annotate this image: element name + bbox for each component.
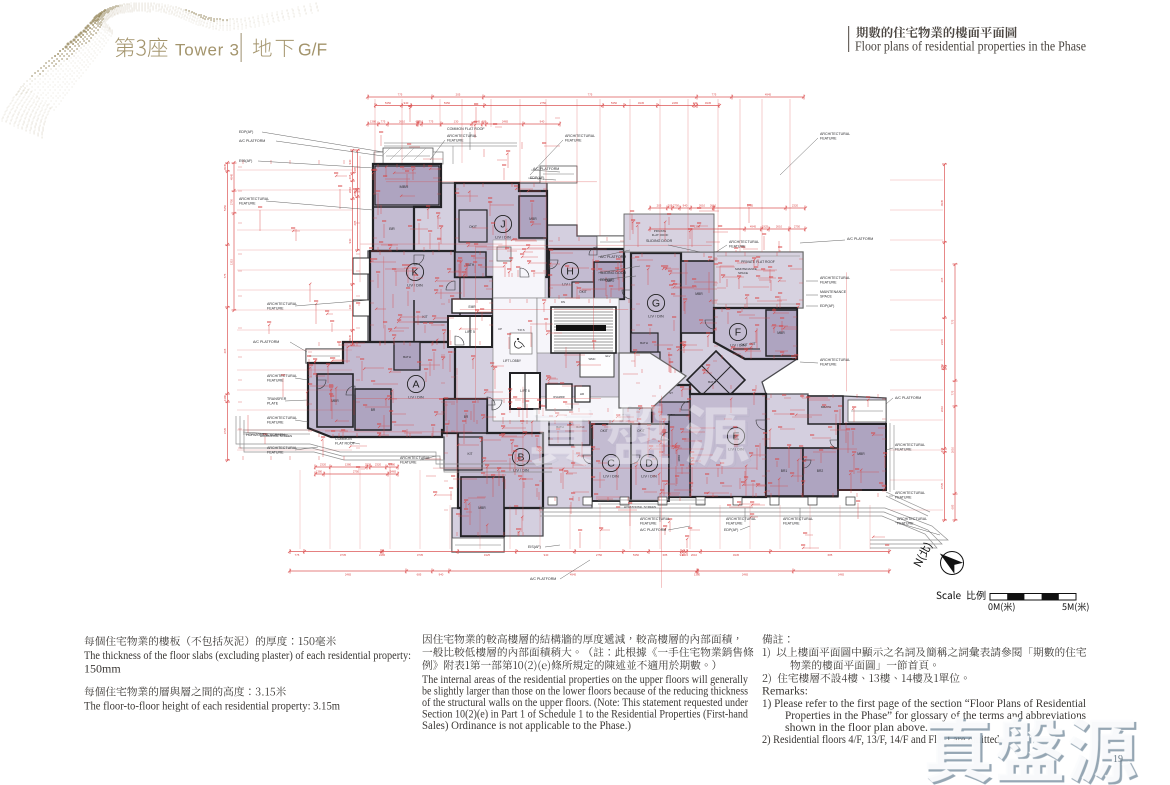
svg-text:G/F: G/F (298, 40, 327, 60)
svg-text:H: H (566, 266, 574, 278)
svg-text:LIFT 5: LIFT 5 (465, 330, 475, 334)
svg-text:KIT: KIT (468, 452, 473, 456)
svg-text:FEATURE: FEATURE (267, 379, 284, 383)
svg-text:FEATURE: FEATURE (267, 307, 284, 311)
svg-text:A/C PLATFORM: A/C PLATFORM (847, 237, 873, 241)
svg-text:LIV / DIN: LIV / DIN (641, 475, 657, 479)
svg-text:2750: 2750 (229, 198, 233, 205)
svg-text:4945: 4945 (348, 334, 352, 341)
svg-text:1380: 1380 (694, 573, 701, 577)
svg-text:FEATURE: FEATURE (267, 451, 284, 455)
svg-text:775: 775 (398, 93, 403, 97)
svg-text:FEATURE: FEATURE (565, 139, 582, 143)
svg-text:ELV: ELV (605, 354, 610, 358)
svg-text:130: 130 (454, 120, 459, 124)
svg-text:2610: 2610 (348, 186, 352, 193)
svg-text:2610: 2610 (691, 553, 698, 557)
svg-text:205: 205 (348, 174, 352, 179)
svg-text:OKIT: OKIT (740, 343, 747, 347)
svg-text:940: 940 (544, 553, 549, 557)
svg-text:FEATURE: FEATURE (820, 363, 837, 367)
svg-text:1925: 1925 (484, 553, 491, 557)
svg-text:940: 940 (683, 204, 688, 208)
svg-text:2750: 2750 (353, 470, 360, 474)
svg-text:2610: 2610 (940, 405, 944, 412)
svg-text:2320: 2320 (792, 204, 799, 208)
svg-text:A: A (412, 379, 419, 391)
svg-text:775: 775 (381, 120, 386, 124)
svg-text:LIFT LOBBY: LIFT LOBBY (503, 359, 522, 363)
svg-text:1315: 1315 (229, 258, 233, 265)
svg-text:COMMON: COMMON (335, 437, 352, 441)
svg-text:ARCHITECTURAL: ARCHITECTURAL (239, 197, 269, 201)
svg-text:2320: 2320 (375, 463, 382, 467)
svg-text:HR: HR (580, 392, 584, 396)
svg-text:4945: 4945 (229, 173, 233, 180)
svg-text:EDP(AF): EDP(AF) (724, 528, 738, 532)
svg-text:LIV / DIN: LIV / DIN (603, 475, 619, 479)
svg-text:5350: 5350 (223, 204, 227, 211)
svg-text:1925: 1925 (762, 225, 769, 229)
svg-text:ARCHITECTURAL: ARCHITECTURAL (640, 517, 670, 521)
svg-text:5350: 5350 (385, 101, 392, 105)
svg-text:A/C PLATFORM: A/C PLATFORM (253, 340, 279, 344)
svg-text:EDP(AF): EDP(AF) (530, 176, 544, 180)
svg-text:2465: 2465 (390, 470, 397, 474)
svg-text:SLIDING DOOR: SLIDING DOOR (600, 271, 627, 275)
svg-text:MAINTENANCE: MAINTENANCE (820, 290, 847, 294)
svg-text:MBR: MBR (331, 399, 339, 403)
svg-text:E95(AF): E95(AF) (239, 159, 252, 163)
svg-text:1380: 1380 (370, 120, 377, 124)
svg-text:150mm: 150mm (84, 662, 121, 676)
svg-text:G: G (652, 298, 660, 310)
svg-text:2465: 2465 (838, 573, 845, 577)
svg-text:FLAT ROOF: FLAT ROOF (335, 442, 356, 446)
svg-text:FEATURE: FEATURE (783, 522, 800, 526)
svg-text:940: 940 (348, 159, 352, 164)
svg-text:BR1: BR1 (781, 469, 788, 473)
svg-text:4945: 4945 (570, 573, 577, 577)
svg-text:4945: 4945 (765, 93, 772, 97)
svg-text:SPACE: SPACE (738, 271, 748, 275)
svg-text:4945: 4945 (940, 199, 944, 206)
svg-text:FEATURE: FEATURE (400, 461, 417, 465)
svg-text:685: 685 (482, 120, 487, 124)
svg-text:2465: 2465 (502, 120, 509, 124)
svg-text:1380: 1380 (345, 463, 352, 467)
svg-text:OKIT: OKIT (600, 429, 607, 433)
svg-text:775: 775 (950, 319, 954, 324)
svg-text:MBR: MBR (857, 452, 865, 456)
svg-text:4945: 4945 (638, 101, 645, 105)
svg-text:FEATURE: FEATURE (729, 245, 746, 249)
svg-text:OKIT: OKIT (469, 225, 477, 229)
svg-text:19: 19 (1113, 754, 1123, 765)
svg-text:BR2: BR2 (817, 469, 824, 473)
svg-text:UP: UP (498, 327, 502, 331)
svg-text:LIFT 6: LIFT 6 (520, 389, 530, 393)
svg-text:130: 130 (693, 101, 698, 105)
svg-text:3735: 3735 (223, 427, 227, 434)
svg-text:205: 205 (940, 277, 944, 282)
svg-text:A/C PLATFORM: A/C PLATFORM (895, 396, 921, 400)
svg-text:2750: 2750 (940, 363, 944, 370)
svg-text:F: F (735, 327, 741, 339)
svg-text:2750: 2750 (596, 553, 603, 557)
svg-text:J: J (500, 219, 505, 231)
svg-text:BATH: BATH (403, 355, 411, 359)
svg-text:2750: 2750 (673, 204, 680, 208)
svg-text:940: 940 (348, 238, 352, 243)
svg-text:FEATURE: FEATURE (447, 139, 464, 143)
svg-text:MBR: MBR (677, 454, 681, 462)
svg-text:MBR: MBR (529, 217, 537, 221)
svg-text:3735: 3735 (340, 553, 347, 557)
svg-text:LIV / DIN: LIV / DIN (408, 396, 424, 400)
svg-text:FEATURE: FEATURE (726, 522, 743, 526)
svg-text:ARCHITECTURAL: ARCHITECTURAL (820, 132, 850, 136)
svg-text:205: 205 (657, 204, 662, 208)
svg-text:LIV / DIN: LIV / DIN (407, 284, 423, 288)
svg-text:SLIDING DOOR: SLIDING DOOR (646, 239, 673, 243)
svg-text:BR: BR (389, 226, 395, 231)
svg-text:A/C PLATFORM: A/C PLATFORM (530, 577, 556, 581)
svg-text:940: 940 (540, 120, 545, 124)
svg-text:ARCHITECTURAL: ARCHITECTURAL (783, 517, 813, 521)
svg-text:1380: 1380 (316, 470, 323, 474)
svg-text:4945: 4945 (733, 553, 740, 557)
svg-text:4945: 4945 (750, 225, 757, 229)
svg-text:2610: 2610 (950, 446, 954, 453)
svg-text:FEATURE: FEATURE (267, 421, 284, 425)
svg-text:775: 775 (950, 390, 954, 395)
svg-text:T.R.S: T.R.S (517, 328, 524, 332)
svg-text:COMMON FLAT ROOF: COMMON FLAT ROOF (447, 127, 485, 131)
svg-text:OKIT: OKIT (579, 290, 586, 294)
svg-text:BR: BR (464, 415, 469, 419)
svg-text:2465: 2465 (353, 189, 357, 196)
svg-text:The thickness of the floor sla: The thickness of the floor slabs (exclud… (84, 648, 411, 662)
svg-text:FEATURE: FEATURE (895, 496, 912, 500)
svg-text:130: 130 (348, 304, 352, 309)
svg-text:ARCHITECTURAL: ARCHITECTURAL (895, 491, 925, 495)
svg-text:2465: 2465 (345, 573, 352, 577)
svg-text:LIV / DIN: LIV / DIN (495, 236, 511, 240)
svg-text:ARCHITECTURAL: ARCHITECTURAL (895, 443, 925, 447)
svg-text:775: 775 (588, 93, 593, 97)
svg-text:4945: 4945 (705, 101, 712, 105)
svg-text:Tower 3: Tower 3 (175, 41, 239, 60)
svg-text:2465: 2465 (379, 553, 386, 557)
svg-text:Floor plans of residential pro: Floor plans of residential properties in… (855, 39, 1086, 54)
svg-text:775: 775 (429, 120, 434, 124)
svg-text:ARCHITECTURAL: ARCHITECTURAL (447, 134, 477, 138)
svg-text:EDP(AF): EDP(AF) (820, 304, 834, 308)
svg-text:775: 775 (712, 93, 717, 97)
svg-text:DN: DN (561, 300, 565, 304)
svg-text:2320: 2320 (365, 463, 372, 467)
svg-text:FEATURE: FEATURE (895, 448, 912, 452)
svg-text:2750: 2750 (540, 101, 547, 105)
svg-text:5350: 5350 (633, 553, 640, 557)
svg-text:The floor-to-floor height of e: The floor-to-floor height of each reside… (84, 699, 341, 713)
svg-text:FEATURE: FEATURE (820, 281, 837, 285)
svg-text:2465: 2465 (940, 338, 944, 345)
svg-text:2610: 2610 (399, 120, 406, 124)
svg-text:ARCHITECTURAL: ARCHITECTURAL (267, 416, 297, 420)
svg-text:3735: 3735 (417, 553, 424, 557)
svg-text:2465: 2465 (672, 101, 679, 105)
svg-text:EMR: EMR (468, 305, 476, 309)
svg-text:940: 940 (404, 101, 409, 105)
svg-text:ARCHITECTURAL: ARCHITECTURAL (400, 456, 430, 460)
svg-text:ARCHITECTURAL: ARCHITECTURAL (897, 517, 927, 521)
svg-text:SPACE: SPACE (820, 295, 833, 299)
svg-text:2465: 2465 (353, 166, 357, 173)
svg-text:ARCHITECTURAL: ARCHITECTURAL (729, 240, 759, 244)
svg-text:2610: 2610 (776, 225, 783, 229)
svg-text:FEATURE: FEATURE (640, 522, 657, 526)
svg-text:685: 685 (417, 573, 422, 577)
svg-text:ARCHITECTURAL: ARCHITECTURAL (820, 358, 850, 362)
svg-text:FEATURE: FEATURE (239, 202, 256, 206)
svg-text:ARCHITECTURAL: ARCHITECTURAL (267, 302, 297, 306)
svg-text:775: 775 (223, 273, 227, 278)
svg-text:3735: 3735 (940, 482, 944, 489)
svg-text:2750: 2750 (794, 225, 801, 229)
svg-text:2610: 2610 (710, 204, 717, 208)
svg-text:WMC: WMC (589, 357, 596, 361)
svg-text:ARCHITECTURAL: ARCHITECTURAL (726, 517, 756, 521)
svg-text:ARCHITECTURAL: ARCHITECTURAL (267, 374, 297, 378)
svg-text:685: 685 (950, 504, 954, 509)
svg-text:ARCHITECTURAL: ARCHITECTURAL (565, 134, 595, 138)
svg-text:FEATURE: FEATURE (820, 137, 837, 141)
svg-text:1380: 1380 (223, 394, 227, 401)
svg-text:HORIZONTAL SCREEN: HORIZONTAL SCREEN (624, 505, 656, 509)
svg-text:2610: 2610 (699, 204, 706, 208)
svg-text:A/C PLATFORM: A/C PLATFORM (239, 139, 265, 143)
svg-text:Sales) Ordinance is not applic: Sales) Ordinance is not applicable to th… (422, 718, 631, 732)
svg-text:TRANSFER: TRANSFER (267, 397, 287, 401)
svg-text:4945: 4945 (223, 163, 227, 170)
svg-text:5350: 5350 (611, 101, 618, 105)
svg-text:EDP(AF): EDP(AF) (239, 130, 253, 134)
svg-text:LIV / DIN: LIV / DIN (648, 315, 664, 319)
svg-text:685: 685 (663, 553, 668, 557)
svg-text:2320: 2320 (320, 463, 327, 467)
svg-text:MBR: MBR (478, 506, 486, 510)
svg-text:205: 205 (223, 348, 227, 353)
svg-text:205: 205 (456, 93, 461, 97)
svg-text:2610: 2610 (417, 120, 424, 124)
svg-text:ARCHITECTURAL: ARCHITECTURAL (820, 276, 850, 280)
svg-text:2465: 2465 (742, 573, 749, 577)
svg-text:BATH: BATH (640, 341, 648, 345)
svg-text:775: 775 (295, 553, 300, 557)
svg-text:ARCHITECTURAL: ARCHITECTURAL (267, 446, 297, 450)
svg-text:EIS(AF): EIS(AF) (528, 545, 541, 549)
svg-text:775: 775 (940, 447, 944, 452)
svg-text:BATH: BATH (708, 380, 716, 384)
svg-text:940: 940 (439, 573, 444, 577)
svg-text:A/C PLATFORM: A/C PLATFORM (640, 528, 666, 532)
svg-text:685: 685 (828, 553, 833, 557)
svg-text:MBR: MBR (695, 292, 703, 296)
svg-text:1315: 1315 (682, 553, 689, 557)
svg-text:BR: BR (371, 408, 376, 412)
svg-text:PLATE: PLATE (267, 402, 279, 406)
svg-text:5350: 5350 (444, 101, 451, 105)
svg-text:MBR: MBR (777, 331, 785, 335)
